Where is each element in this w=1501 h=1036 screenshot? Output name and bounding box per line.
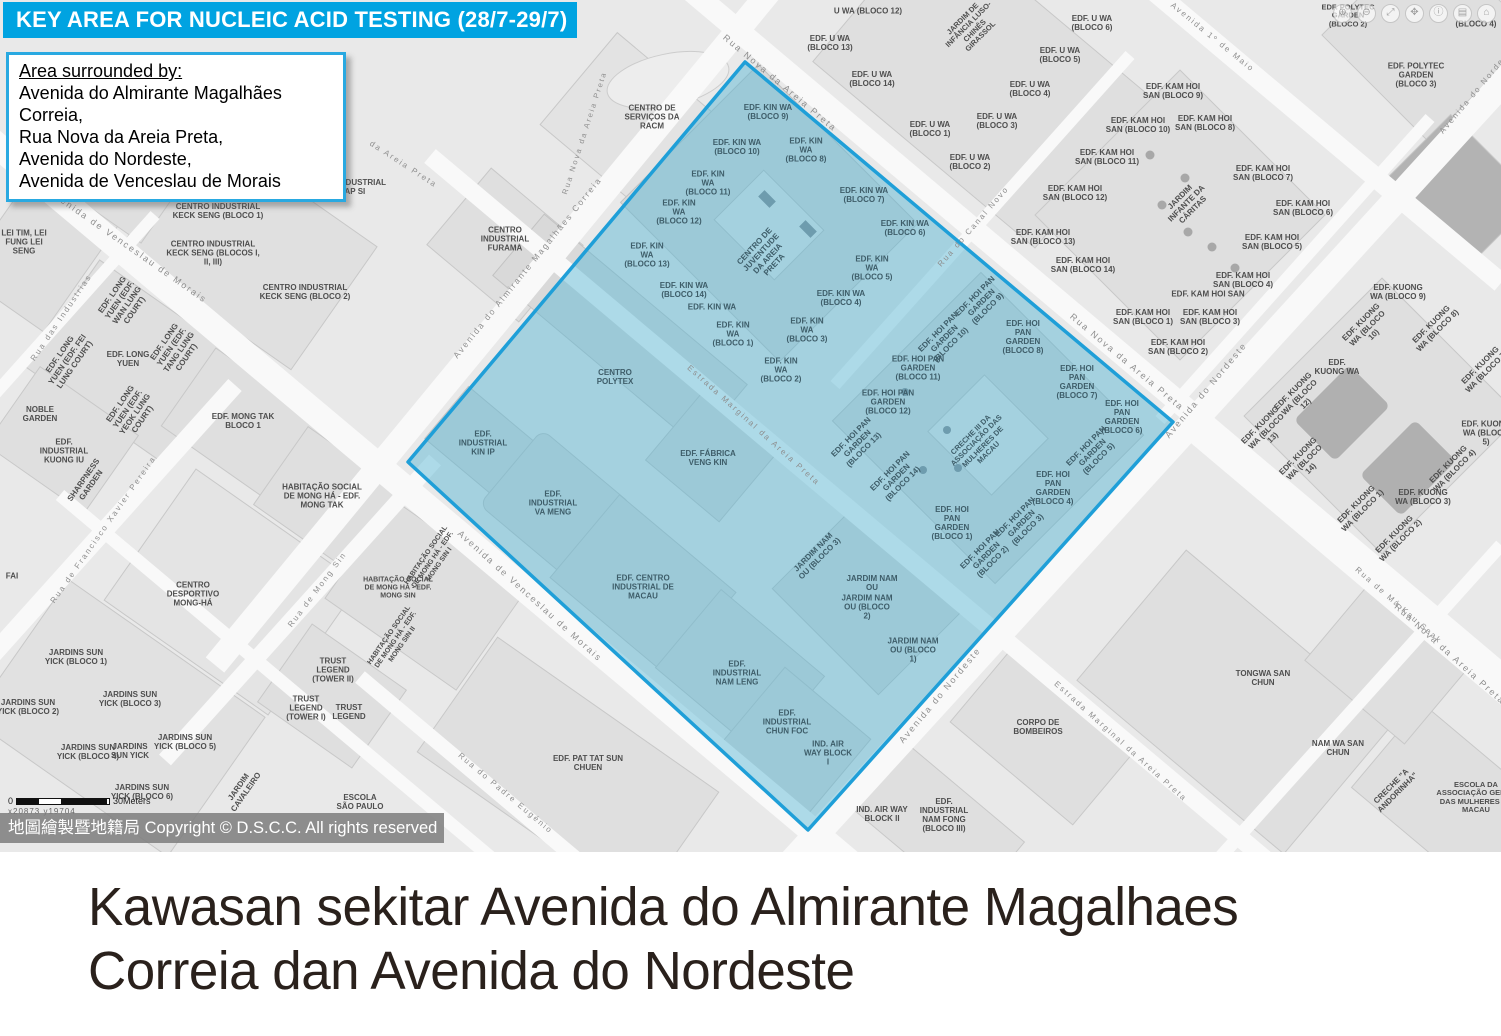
caption-line-1: Kawasan sekitar Avenida do Almirante Mag…	[88, 876, 1238, 940]
caption-line-2: Correia dan Avenida do Nordeste	[88, 940, 1238, 1004]
page: Rua Nova da Areia PretaRua Nova da Areia…	[0, 0, 1501, 1036]
home-icon[interactable]: ⌂	[1477, 4, 1496, 23]
map-controls: ⊕⊖⤢✥ⓘ▤⌂	[1333, 4, 1496, 23]
scale-segments	[16, 798, 110, 805]
zoom-out-icon[interactable]: ⊖	[1357, 4, 1376, 23]
info-box-line: Avenida do Nordeste,	[19, 149, 333, 171]
map-title-banner: KEY AREA FOR NUCLEIC ACID TESTING (28/7-…	[3, 2, 577, 38]
info-icon[interactable]: ⓘ	[1429, 4, 1448, 23]
info-box-line: Avenida de Venceslau de Morais	[19, 171, 333, 193]
scale-end: 30Meters	[113, 796, 151, 806]
copyright-bar: 地圖繪製暨地籍局 Copyright © D.S.C.C. All rights…	[0, 813, 444, 843]
info-box-line: Avenida do Almirante Magalhães Correia,	[19, 83, 333, 127]
area-info-box: Area surrounded by: Avenida do Almirante…	[6, 52, 346, 202]
map: Rua Nova da Areia PretaRua Nova da Areia…	[0, 0, 1501, 852]
info-box-heading: Area surrounded by:	[19, 61, 333, 83]
pan-hand-icon[interactable]: ✥	[1405, 4, 1424, 23]
layers-icon[interactable]: ▤	[1453, 4, 1472, 23]
scale-start: 0	[8, 796, 13, 806]
fullscreen-icon[interactable]: ⤢	[1381, 4, 1400, 23]
zoom-in-icon[interactable]: ⊕	[1333, 4, 1352, 23]
info-box-line: Rua Nova da Areia Preta,	[19, 127, 333, 149]
caption: Kawasan sekitar Avenida do Almirante Mag…	[88, 876, 1238, 1003]
